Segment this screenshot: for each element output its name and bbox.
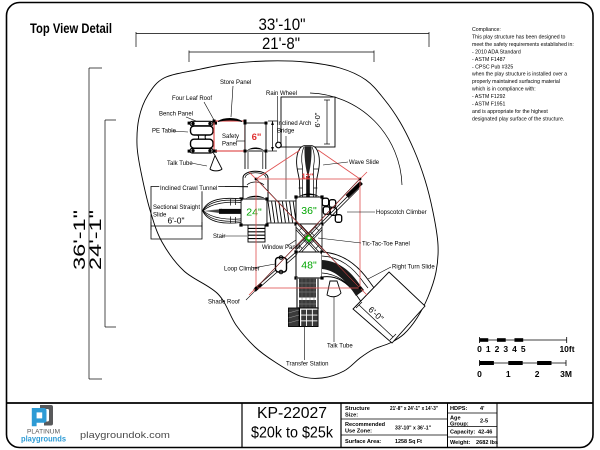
svg-text:4': 4' <box>480 406 485 412</box>
svg-text:Talk Tube: Talk Tube <box>167 161 193 167</box>
svg-text:Rain Wheel: Rain Wheel <box>266 91 297 97</box>
svg-text:$20k to $25k: $20k to $25k <box>251 425 333 442</box>
svg-text:Size:: Size: <box>345 413 358 419</box>
svg-text:1: 1 <box>486 344 491 354</box>
svg-text:42-46: 42-46 <box>478 430 492 436</box>
svg-text:10ft: 10ft <box>559 344 574 354</box>
svg-text:- ASTM F1487: - ASTM F1487 <box>472 57 506 63</box>
svg-text:6": 6" <box>252 132 262 143</box>
svg-text:Capacity:: Capacity: <box>450 430 475 436</box>
svg-text:2: 2 <box>495 344 500 354</box>
svg-text:- ASTM F1951: - ASTM F1951 <box>472 102 506 108</box>
svg-text:Bench Panel: Bench Panel <box>159 112 193 118</box>
svg-text:Four Leaf Roof: Four Leaf Roof <box>172 96 212 102</box>
svg-text:Safety: Safety <box>222 134 239 140</box>
svg-text:KP-22027: KP-22027 <box>257 405 327 422</box>
svg-text:24": 24" <box>246 207 262 219</box>
svg-text:2: 2 <box>535 369 540 379</box>
svg-text:24'-1": 24'-1" <box>86 210 105 270</box>
svg-text:and is appropriate for the hig: and is appropriate for the highest <box>472 109 548 115</box>
svg-text:3M: 3M <box>560 369 572 379</box>
svg-text:21'-8" x 24'-1" x 14'-3": 21'-8" x 24'-1" x 14'-3" <box>390 406 438 412</box>
svg-text:Slide: Slide <box>153 213 167 219</box>
svg-text:21'-8": 21'-8" <box>262 35 300 53</box>
svg-text:5: 5 <box>521 344 526 354</box>
svg-text:Hopscotch Climber: Hopscotch Climber <box>376 210 427 216</box>
svg-text:Tic-Tac-Toe Panel: Tic-Tac-Toe Panel <box>362 242 410 248</box>
svg-text:Surface Area:: Surface Area: <box>345 439 381 445</box>
svg-text:48": 48" <box>301 260 317 272</box>
svg-text:0: 0 <box>477 369 482 379</box>
svg-text:designated play surface of the: designated play surface of the structure… <box>472 116 564 122</box>
svg-text:2-5: 2-5 <box>480 419 488 425</box>
svg-text:Sectional Straight: Sectional Straight <box>153 205 200 211</box>
svg-text:- CPSC Pub #325: - CPSC Pub #325 <box>472 64 513 70</box>
svg-text:Group:: Group: <box>450 422 469 428</box>
svg-text:meet the safety requirements e: meet the safety requirements established… <box>472 42 574 48</box>
svg-text:Window Panel: Window Panel <box>262 245 300 251</box>
svg-text:Shade Roof: Shade Roof <box>208 300 240 306</box>
svg-text:33'-10": 33'-10" <box>259 16 306 34</box>
svg-text:36": 36" <box>301 205 317 217</box>
svg-text:1: 1 <box>506 369 511 379</box>
svg-text:Top View Detail: Top View Detail <box>30 21 112 36</box>
svg-text:PE Table: PE Table <box>152 129 177 135</box>
svg-text:playgroundok.com: playgroundok.com <box>80 430 170 441</box>
svg-text:1258 Sq Ft: 1258 Sq Ft <box>395 439 422 445</box>
svg-text:Talk Tube: Talk Tube <box>327 344 353 350</box>
svg-text:0: 0 <box>477 344 482 354</box>
svg-text:- ASTM F1292: - ASTM F1292 <box>472 94 506 100</box>
svg-text:which is in compliance with:: which is in compliance with: <box>472 87 536 93</box>
svg-text:- 2010 ADA Standard: - 2010 ADA Standard <box>472 49 521 55</box>
svg-text:4: 4 <box>512 344 517 354</box>
svg-text:Stair: Stair <box>213 234 225 240</box>
svg-text:playgrounds: playgrounds <box>21 435 67 444</box>
svg-text:6'-0": 6'-0" <box>313 112 322 127</box>
svg-text:Store Panel: Store Panel <box>220 80 251 86</box>
svg-text:Inclined Arch: Inclined Arch <box>277 121 311 127</box>
svg-text:Transfer Station: Transfer Station <box>286 362 328 368</box>
svg-text:HDPS:: HDPS: <box>450 406 468 412</box>
svg-text:Wave Slide: Wave Slide <box>349 160 380 166</box>
svg-text:Right Turn Slide: Right Turn Slide <box>392 265 435 271</box>
svg-text:33'-10" x 36'-1": 33'-10" x 36'-1" <box>395 426 431 432</box>
svg-text:properly maintained surfacing: properly maintained surfacing material <box>472 79 560 85</box>
svg-text:Inclined Crawl Tunnel: Inclined Crawl Tunnel <box>160 186 217 192</box>
svg-text:Bridge: Bridge <box>277 129 295 135</box>
svg-text:Panel: Panel <box>222 142 237 148</box>
svg-text:Loop Climber: Loop Climber <box>224 267 260 273</box>
svg-text:3: 3 <box>503 344 508 354</box>
svg-text:6'-0": 6'-0" <box>168 216 185 226</box>
svg-text:2682 lbs: 2682 lbs <box>476 440 498 446</box>
svg-text:when the play structure is ins: when the play structure is installed ove… <box>472 72 567 78</box>
svg-text:Use Zone:: Use Zone: <box>345 429 372 435</box>
svg-text:Compliance:: Compliance: <box>472 27 501 33</box>
svg-text:Recommended: Recommended <box>345 422 386 428</box>
svg-text:Structure: Structure <box>345 406 370 412</box>
svg-text:This play structure has been d: This play structure has been designed to <box>472 34 566 40</box>
svg-text:Weight:: Weight: <box>450 440 471 446</box>
